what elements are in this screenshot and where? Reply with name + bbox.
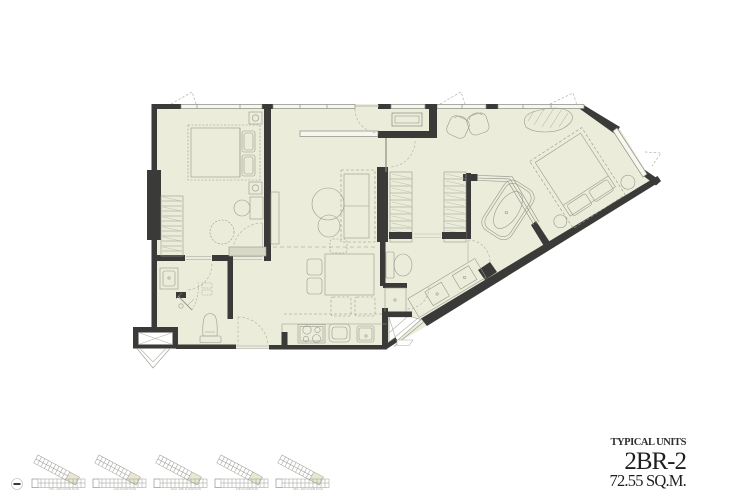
svg-text:22nd - 26th FLOOR PLAN: 22nd - 26th FLOOR PLAN xyxy=(171,487,201,491)
svg-text:6TH - 20th FLOOR PLAN: 6TH - 20th FLOOR PLAN xyxy=(49,487,79,491)
svg-text:21st FLOOR PLAN: 21st FLOOR PLAN xyxy=(114,487,136,491)
svg-text:27th FLOOR PLAN: 27th FLOOR PLAN xyxy=(236,487,258,491)
svg-text:28th - 34th FLOOR PLAN: 28th - 34th FLOOR PLAN xyxy=(293,487,323,491)
